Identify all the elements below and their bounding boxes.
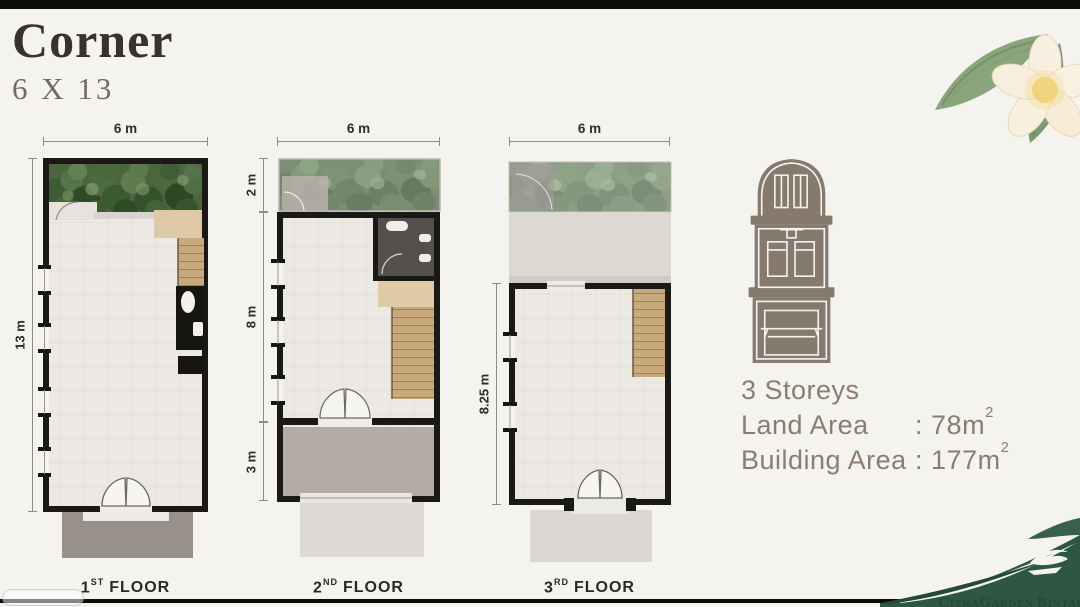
- plan2-front-label: 3 m: [244, 450, 259, 472]
- plan1-width-dimension: 6 m: [43, 141, 208, 142]
- porch-wall-right: [626, 498, 636, 511]
- plan2-main-label: 8 m: [244, 306, 259, 328]
- left-wall-windows: [271, 259, 285, 405]
- top-letterbox-bar: [0, 0, 1080, 9]
- slide: Corner 6 X 13: [0, 0, 1080, 607]
- door-porch: [572, 498, 628, 514]
- brand-wordmark: CitraGarden Bintaro: [938, 595, 1080, 607]
- floor-2-word: FLOOR: [343, 579, 404, 596]
- awning-canopy: [300, 502, 424, 557]
- floor-3-ordinal: RD: [554, 577, 569, 587]
- specs-block: 3 Storeys Land Area: 78m2 Building Area:…: [741, 375, 1009, 480]
- floor-label-3: 3RDFLOOR: [509, 578, 670, 597]
- floor-plan-3-drawing: [500, 150, 685, 562]
- plan3-width-dimension: 6 m: [509, 141, 670, 142]
- staircase: [633, 289, 665, 377]
- watermark: [2, 589, 84, 606]
- floor-2-ordinal: ND: [323, 577, 338, 587]
- porch-step: [83, 512, 169, 521]
- plan2-balcony-label: 2 m: [244, 174, 259, 196]
- plan2-width-label: 6 m: [347, 121, 370, 136]
- step-strip: [94, 212, 156, 219]
- brand-corner: CitraGarden Bintaro: [880, 515, 1080, 607]
- plan1-height-dimension: 13 m: [32, 158, 33, 512]
- unit-size-subtitle: 6 X 13: [12, 71, 174, 107]
- plan2-front-dimension: 3 m: [263, 422, 264, 501]
- storeys-line: 3 Storeys: [741, 375, 1009, 406]
- building-area-line: Building Area: 177m2: [741, 445, 1009, 476]
- frangipani-flower-illustration: [930, 5, 1080, 145]
- stair-landing: [378, 281, 434, 307]
- plan1-width-label: 6 m: [114, 121, 137, 136]
- plan2-width-dimension: 6 m: [277, 141, 440, 142]
- plan2-balcony-dimension: 2 m: [263, 158, 264, 212]
- staircase: [392, 307, 434, 399]
- floor-plan-2-drawing: [270, 150, 455, 562]
- front-room-floor: [283, 427, 434, 496]
- stair-landing: [154, 210, 202, 238]
- porch-wall-left: [564, 498, 574, 511]
- plan2-main-dimension: 8 m: [263, 212, 264, 422]
- floor-label-2: 2NDFLOOR: [277, 578, 440, 597]
- floor-1-word: FLOOR: [109, 579, 170, 596]
- floor-2-number: 2: [313, 579, 323, 596]
- building-area-value: 177m: [931, 445, 1001, 475]
- building-area-sup: 2: [1001, 440, 1010, 456]
- toilet-fixture: [419, 254, 431, 262]
- land-area-line: Land Area: 78m2: [741, 410, 1009, 441]
- roof-terrace: [509, 212, 671, 285]
- floor-1-ordinal: ST: [91, 577, 105, 587]
- building-area-label: Building Area: [741, 445, 915, 476]
- bathroom-wall-bottom: [373, 276, 440, 281]
- bathtub-fixture: [386, 221, 408, 231]
- plan3-height-label: 8.25 m: [477, 374, 492, 414]
- plan3-width-label: 6 m: [578, 121, 601, 136]
- building-area-colon: :: [915, 445, 923, 475]
- roof-bulkhead: [512, 164, 554, 210]
- land-area-label: Land Area: [741, 410, 915, 441]
- land-area-value: 78m: [931, 410, 985, 440]
- floor-3-word: FLOOR: [574, 579, 635, 596]
- building-elevation-icon: [743, 151, 840, 365]
- toilet-fixture: [181, 291, 195, 313]
- staircase: [178, 238, 204, 286]
- floor-3-number: 3: [544, 579, 554, 596]
- wall-jut: [178, 356, 204, 374]
- page-title: Corner: [12, 14, 174, 67]
- sink-fixture: [193, 322, 203, 336]
- plan3-height-dimension: 8.25 m: [496, 283, 497, 505]
- leaf-swoosh-illustration: [880, 515, 1080, 607]
- bathroom-wall-left: [373, 212, 378, 279]
- title-block: Corner 6 X 13: [12, 14, 174, 107]
- land-area-sup: 2: [985, 405, 994, 421]
- floor-plan-1-drawing: [36, 150, 216, 562]
- plan1-height-label: 13 m: [13, 320, 28, 350]
- sink-fixture: [419, 234, 431, 242]
- balcony-panel: [282, 176, 328, 212]
- land-area-colon: :: [915, 410, 923, 440]
- front-balcony: [530, 510, 652, 562]
